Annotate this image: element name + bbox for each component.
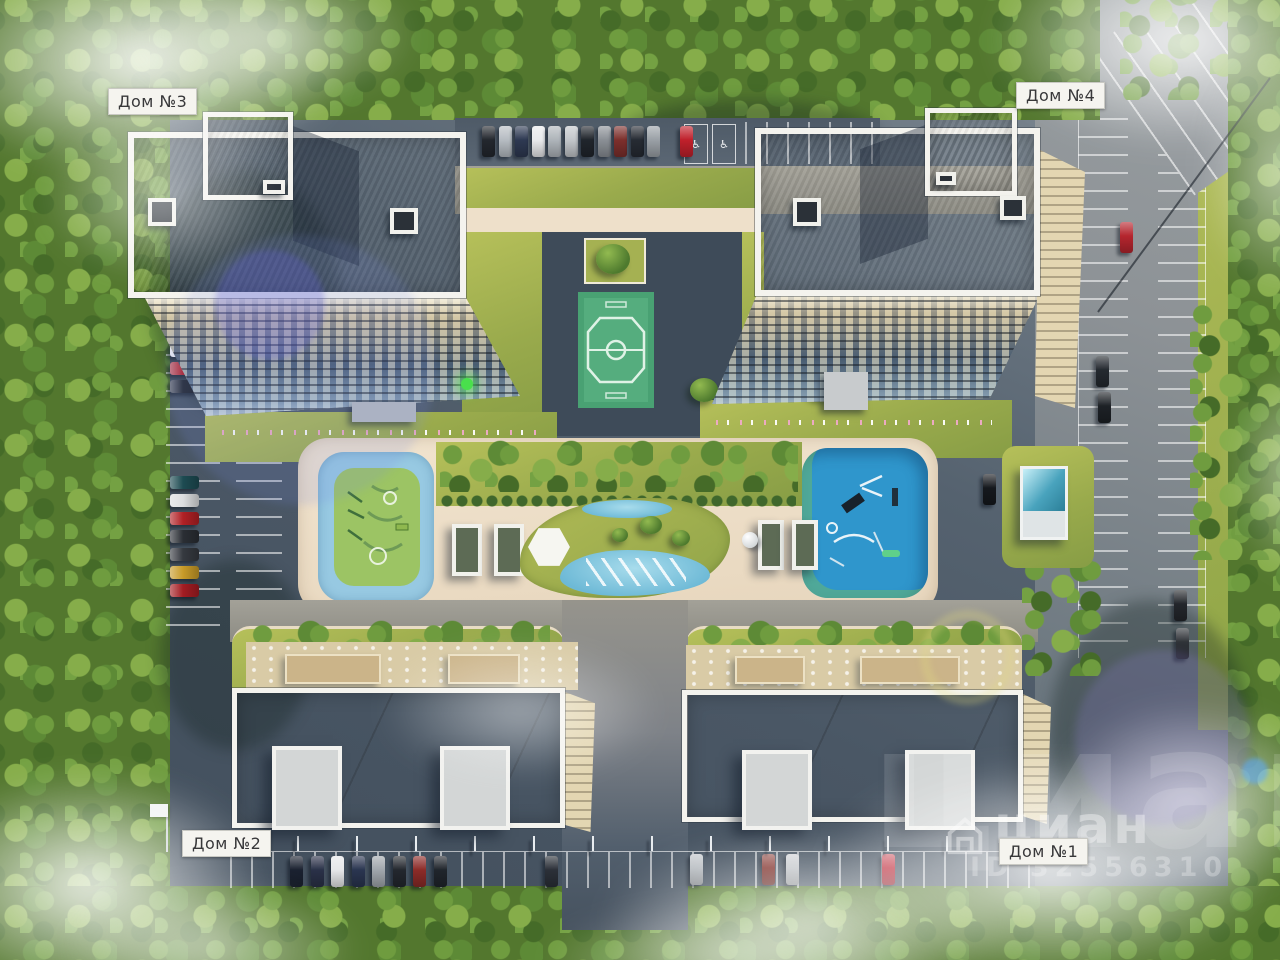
car bbox=[548, 126, 561, 157]
cloud bbox=[380, 640, 660, 780]
bush bbox=[596, 244, 630, 274]
pergola bbox=[452, 524, 482, 576]
car bbox=[413, 856, 426, 887]
building-1-entrance bbox=[742, 750, 812, 830]
sports-field bbox=[578, 292, 654, 408]
car bbox=[1096, 356, 1109, 387]
car bbox=[598, 126, 611, 157]
car bbox=[545, 856, 558, 887]
car bbox=[565, 126, 578, 157]
car bbox=[983, 474, 996, 505]
building-4-canopy bbox=[824, 372, 868, 410]
bush bbox=[640, 516, 662, 534]
lamp-post bbox=[415, 836, 417, 851]
label-house-4: Дом №4 bbox=[1016, 82, 1105, 109]
car bbox=[1120, 222, 1133, 253]
car bbox=[311, 856, 324, 887]
car bbox=[331, 856, 344, 887]
car bbox=[631, 126, 644, 157]
pergola bbox=[758, 520, 784, 570]
car bbox=[1098, 392, 1111, 423]
court-lawn-top bbox=[462, 168, 760, 210]
car bbox=[434, 856, 447, 887]
lamp-post bbox=[651, 836, 653, 851]
car bbox=[170, 566, 199, 579]
label-house-3: Дом №3 bbox=[108, 88, 197, 115]
car bbox=[515, 126, 528, 157]
sphere-gazebo bbox=[742, 532, 758, 548]
lamp-post bbox=[533, 836, 535, 851]
sun-loungers bbox=[586, 558, 686, 586]
car bbox=[614, 126, 627, 157]
lens-flare bbox=[461, 378, 473, 390]
bush bbox=[672, 530, 690, 546]
court-path bbox=[462, 208, 760, 234]
lens-flare bbox=[215, 250, 325, 360]
car bbox=[170, 512, 199, 525]
car bbox=[170, 476, 199, 489]
car bbox=[482, 126, 495, 157]
kiosk-roof bbox=[1023, 469, 1065, 511]
building-1-roof-box bbox=[735, 656, 805, 684]
car bbox=[170, 584, 199, 597]
handicap-icon: ♿ bbox=[719, 138, 729, 151]
car bbox=[680, 126, 693, 157]
bush bbox=[612, 528, 628, 542]
car bbox=[499, 126, 512, 157]
car bbox=[1174, 590, 1187, 621]
car bbox=[372, 856, 385, 887]
label-house-2: Дом №2 bbox=[182, 830, 271, 857]
building-2-roof-box bbox=[285, 654, 381, 684]
residential-complex-site-plan: ♿ ♿ bbox=[0, 0, 1280, 960]
flower-strip bbox=[716, 420, 992, 425]
trees-right-of-house1 bbox=[1022, 556, 1112, 676]
pergola bbox=[792, 520, 818, 570]
plaza-trees bbox=[440, 440, 798, 492]
car bbox=[647, 126, 660, 157]
car bbox=[352, 856, 365, 887]
roof-hatch bbox=[793, 198, 821, 226]
lamp-post bbox=[297, 836, 299, 851]
car bbox=[290, 856, 303, 887]
bush bbox=[690, 378, 718, 402]
handicap-stall: ♿ bbox=[712, 124, 736, 164]
label-house-1: Дом №1 bbox=[999, 838, 1088, 865]
car bbox=[532, 126, 545, 157]
lamp-post bbox=[356, 836, 358, 851]
roof-hatch bbox=[390, 208, 418, 234]
playground-equipment bbox=[812, 458, 918, 588]
lamp-post bbox=[592, 836, 594, 851]
car bbox=[170, 548, 199, 561]
car bbox=[581, 126, 594, 157]
pond-upper bbox=[582, 500, 672, 518]
car bbox=[170, 494, 199, 507]
lamp-post bbox=[474, 836, 476, 851]
car bbox=[170, 530, 199, 543]
roof-hatch bbox=[1000, 196, 1026, 220]
roof-hatch bbox=[936, 172, 956, 185]
car bbox=[393, 856, 406, 887]
building-2-entrance bbox=[272, 746, 342, 830]
